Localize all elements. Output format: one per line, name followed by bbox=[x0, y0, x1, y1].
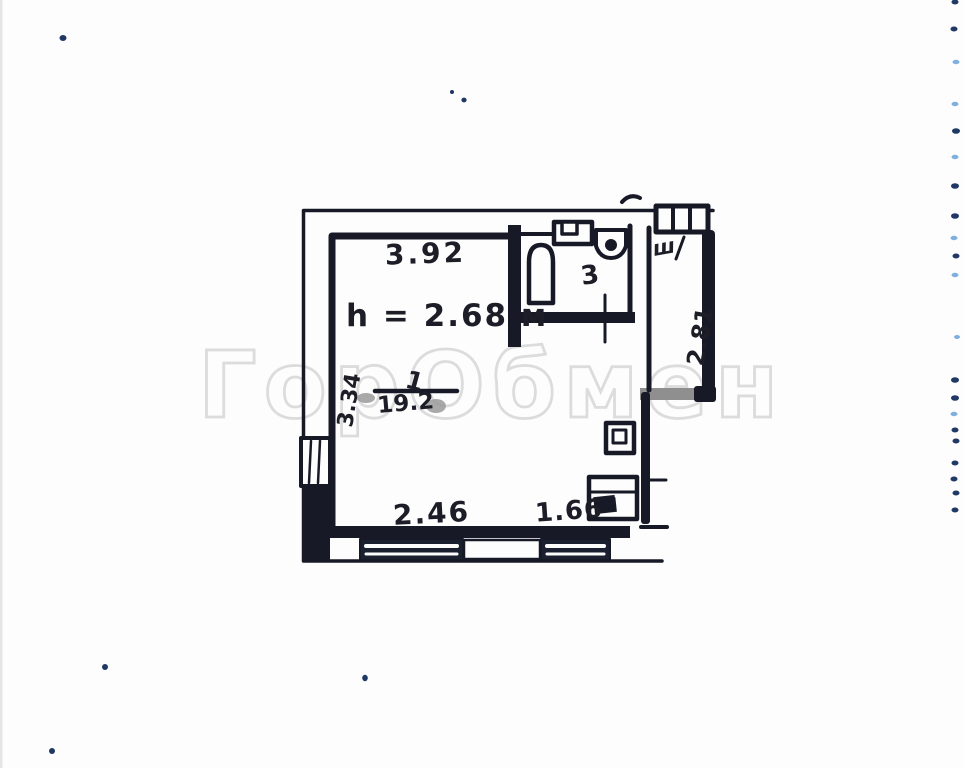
floorplan-scan: ГорОбмен bbox=[0, 0, 964, 768]
closet-mark: ш bbox=[651, 233, 677, 261]
main-room-bottom-wall bbox=[329, 526, 630, 538]
dim-top-width: 3.92 bbox=[384, 236, 466, 272]
scan-smudge bbox=[622, 196, 640, 202]
window-bottom-right bbox=[541, 539, 610, 560]
closet-slash-mark bbox=[676, 237, 684, 259]
window-left bbox=[301, 438, 330, 486]
scanned-floorplan-page: ГорОбмен bbox=[0, 0, 964, 768]
scan-edge-line bbox=[0, 0, 3, 768]
toilet-fixture bbox=[529, 245, 553, 303]
window-pier bbox=[464, 540, 540, 559]
room-area: 19.2 bbox=[376, 388, 435, 419]
vent-box bbox=[606, 423, 634, 453]
dim-bottom-left: 2.46 bbox=[392, 495, 471, 532]
corner-pillar bbox=[302, 487, 330, 561]
window-top-right bbox=[656, 206, 708, 232]
bathroom-area: 3 bbox=[579, 260, 601, 292]
washbasin-fixture bbox=[596, 230, 626, 258]
dim-bottom-right: 1.66 bbox=[534, 494, 604, 529]
window-bottom-left bbox=[360, 539, 463, 560]
ceiling-height-note: h = 2.68 м bbox=[346, 298, 548, 334]
sink-fixture bbox=[554, 222, 592, 244]
